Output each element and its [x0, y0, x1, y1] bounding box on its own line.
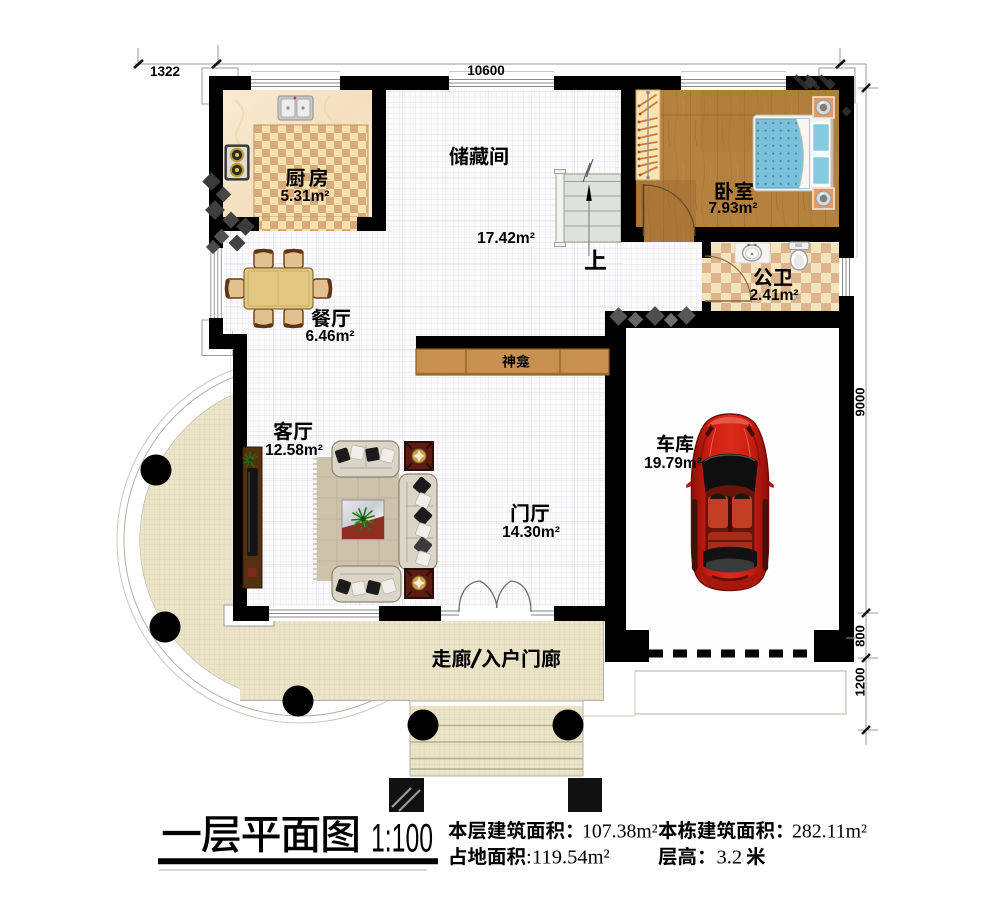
svg-text:119.54m²: 119.54m² — [532, 847, 610, 869]
svg-text:3.2: 3.2 — [717, 847, 743, 869]
svg-text:12.58m²: 12.58m² — [265, 442, 323, 459]
svg-text:14.30m²: 14.30m² — [502, 524, 560, 541]
svg-text:9000: 9000 — [853, 388, 868, 417]
svg-text::: : — [526, 847, 532, 869]
svg-text:5.31m²: 5.31m² — [280, 188, 329, 205]
svg-text:1200: 1200 — [853, 668, 868, 697]
svg-text:1322: 1322 — [150, 64, 180, 79]
svg-text:282.11m²: 282.11m² — [792, 821, 867, 843]
svg-text:19.79m²: 19.79m² — [644, 455, 702, 472]
svg-text:107.38m²: 107.38m² — [582, 821, 658, 843]
svg-text:800: 800 — [853, 625, 868, 647]
svg-text:17.42m²: 17.42m² — [477, 230, 535, 247]
svg-text:1:100: 1:100 — [371, 817, 433, 861]
svg-text:7.93m²: 7.93m² — [708, 200, 757, 217]
svg-text:2.41m²: 2.41m² — [749, 287, 798, 304]
svg-text:6.46m²: 6.46m² — [305, 328, 354, 345]
svg-text:10600: 10600 — [467, 63, 505, 78]
